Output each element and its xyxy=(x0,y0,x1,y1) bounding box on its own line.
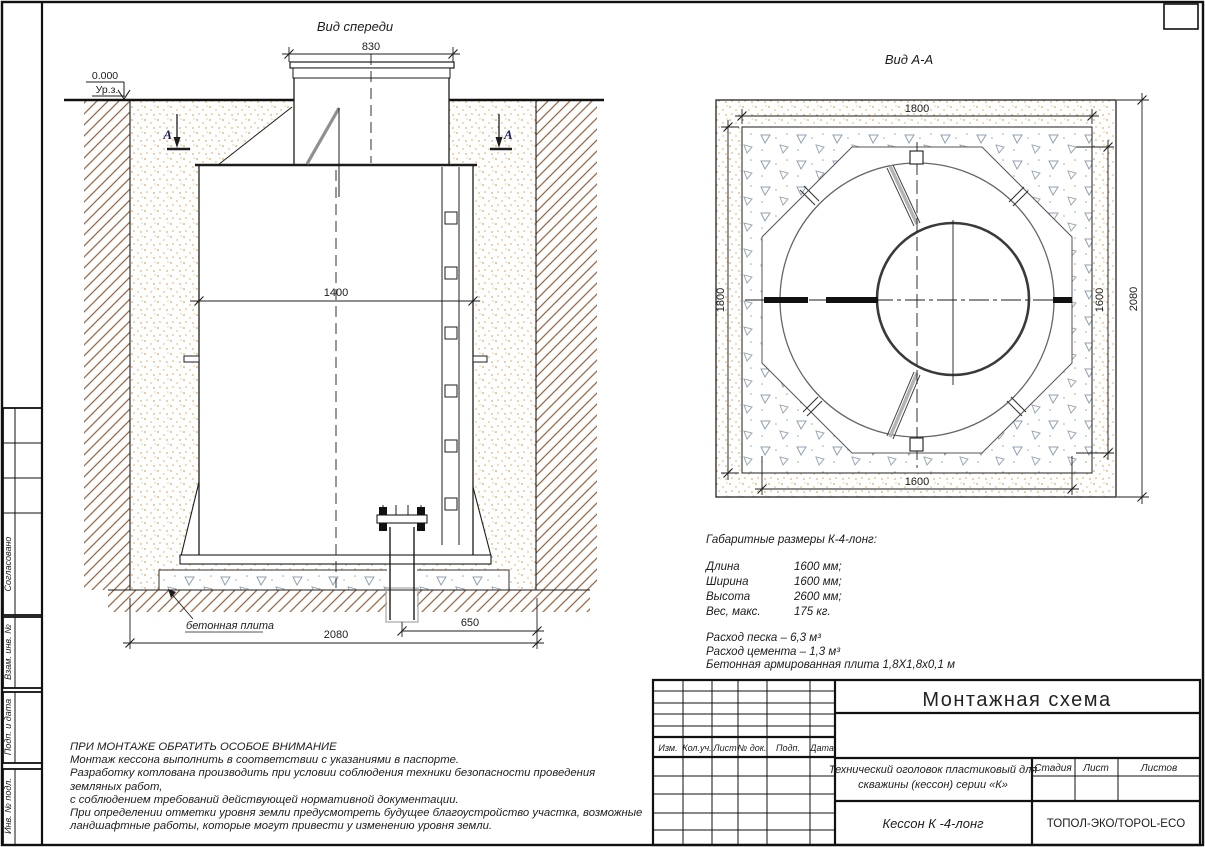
rev-header-data: Дата xyxy=(809,743,834,753)
warning-line: с соблюдением требований действующей нор… xyxy=(70,794,645,807)
warning-line: При определении отметки уровня земли пре… xyxy=(70,807,645,820)
drawing-sheet: 0.000 Ур.з. А А 830 1400 2080 650 бетонн… xyxy=(0,0,1205,847)
spec-row: Высота2600 мм; xyxy=(706,590,1016,605)
dim-octagon-right: 1600 xyxy=(1094,288,1106,312)
company-name: ТОПОЛ-ЭКО/TOPOL-ECO xyxy=(1047,818,1185,830)
product-name: Кессон К -4-лонг xyxy=(882,816,984,831)
spec-row: Вес, макс.175 кг. xyxy=(706,605,1016,620)
soil-hatch-bottom xyxy=(108,590,590,612)
dim-base: 2080 xyxy=(324,629,348,641)
section-view-title: Вид А-А xyxy=(885,52,933,67)
sidebar-label-approved: Согласовано xyxy=(3,537,13,592)
slab-label: бетонная плита xyxy=(186,620,274,632)
corner-doc-box xyxy=(1164,4,1198,29)
sidebar-label-replace-inv: Взам. инв. № xyxy=(3,624,13,680)
warning-line: Монтаж кессона выполнить в соответствии … xyxy=(70,754,645,767)
note-sand: Расход песка – 6,3 м³ xyxy=(706,632,1016,646)
sheets-label: Листов xyxy=(1140,763,1177,774)
section-view: 1800 1800 1600 2080 1600 Вид А-А xyxy=(715,52,1149,504)
dim-width: 1400 xyxy=(324,287,348,299)
sidebar-label-inv-orig: Инв. № подл. xyxy=(3,778,13,834)
concrete-slab xyxy=(159,570,509,590)
document-name-line1: Технический оголовок пластиковый для xyxy=(829,764,1038,776)
stage-label: Стадия xyxy=(1034,763,1072,774)
elevation-value: 0.000 xyxy=(92,70,118,82)
sidebar: Согласовано Взам. инв. № Подп. и дата Ин… xyxy=(3,408,42,845)
warning-title: ПРИ МОНТАЖЕ ОБРАТИТЬ ОСОБОЕ ВНИМАНИЕ xyxy=(70,741,645,754)
dim-pipe: 650 xyxy=(461,617,479,629)
warning-line: Разработку котлована производить при усл… xyxy=(70,767,645,793)
dim-octagon-bottom: 1600 xyxy=(905,476,929,488)
section-letter: А xyxy=(162,127,172,142)
elevation-label: Ур.з. xyxy=(96,84,119,96)
dimensions-spec-block: Габаритные размеры К-4-лонг: Длина1600 м… xyxy=(706,533,1016,673)
section-letter: А xyxy=(503,127,513,142)
technical-drawing: 0.000 Ур.з. А А 830 1400 2080 650 бетонн… xyxy=(0,0,1205,847)
rev-header-podp: Подп. xyxy=(776,743,800,753)
front-view-title: Вид спереди xyxy=(317,19,393,34)
title-block: Монтажная схема Изм. Кол.уч. Лист № док.… xyxy=(653,680,1200,845)
spec-row: Ширина1600 мм; xyxy=(706,575,1016,590)
installation-warning-block: ПРИ МОНТАЖЕ ОБРАТИТЬ ОСОБОЕ ВНИМАНИЕ Мон… xyxy=(70,741,645,833)
dim-lid: 830 xyxy=(362,41,380,53)
spec-heading: Габаритные размеры К-4-лонг: xyxy=(706,533,1016,548)
spec-notes: Расход песка – 6,3 м³ Расход цемента – 1… xyxy=(706,632,1016,673)
sheet-label: Лист xyxy=(1082,763,1109,774)
document-name-line2: скважины (кессон) серии «К» xyxy=(858,779,1008,791)
dim-pit-right: 2080 xyxy=(1128,287,1140,311)
soil-hatch-right xyxy=(536,100,597,590)
note-slab: Бетонная армированная плита 1,8Х1,8х0,1 … xyxy=(706,659,1016,673)
sidebar-label-sign-date: Подп. и дата xyxy=(3,699,13,755)
warning-line: ландшафтные работы, которые могут привес… xyxy=(70,820,645,833)
dim-plate-top: 1800 xyxy=(905,103,929,115)
rev-header-koluch: Кол.уч. xyxy=(682,743,711,753)
soil-hatch-left xyxy=(84,100,130,590)
rev-header-ndok: № док. xyxy=(738,743,767,753)
spec-row: Длина1600 мм; xyxy=(706,560,1016,575)
drawing-title: Монтажная схема xyxy=(922,689,1111,711)
rev-header-list: Лист xyxy=(712,743,737,753)
front-view: 0.000 Ур.з. А А 830 1400 2080 650 бетонн… xyxy=(64,19,604,649)
dim-plate-left: 1800 xyxy=(715,288,727,312)
note-cement: Расход цемента – 1,3 м³ xyxy=(706,646,1016,660)
rev-header-izm: Изм. xyxy=(658,743,677,753)
